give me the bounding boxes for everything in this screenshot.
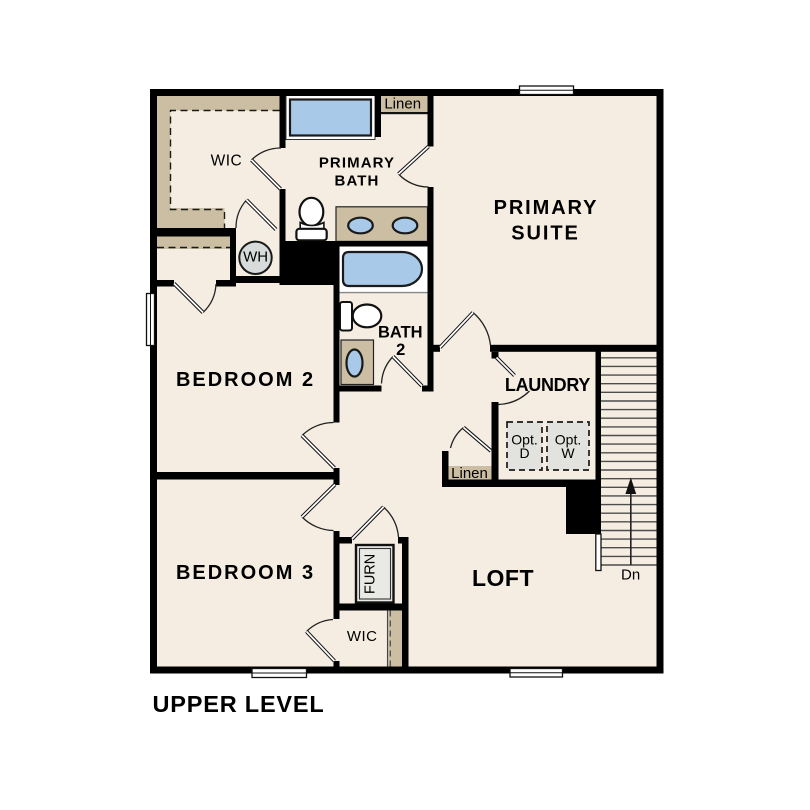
svg-text:W: W	[561, 445, 575, 461]
svg-text:BEDROOM 2: BEDROOM 2	[176, 369, 315, 391]
svg-text:Linen: Linen	[451, 465, 488, 482]
svg-text:PRIMARY: PRIMARY	[494, 197, 599, 219]
svg-text:D: D	[519, 445, 529, 461]
svg-text:BEDROOM 3: BEDROOM 3	[176, 562, 315, 584]
svg-text:WIC: WIC	[211, 152, 243, 169]
svg-text:2: 2	[396, 341, 405, 359]
svg-text:FURN: FURN	[362, 554, 378, 594]
svg-text:LOFT: LOFT	[472, 565, 534, 591]
svg-text:WIC: WIC	[347, 628, 378, 645]
svg-text:LAUNDRY: LAUNDRY	[505, 375, 591, 395]
svg-text:Dn: Dn	[621, 567, 640, 584]
svg-text:UPPER LEVEL: UPPER LEVEL	[153, 691, 325, 717]
svg-text:BATH: BATH	[335, 173, 380, 190]
svg-text:WH: WH	[243, 249, 268, 266]
svg-text:PRIMARY: PRIMARY	[319, 155, 395, 172]
svg-text:SUITE: SUITE	[511, 223, 579, 245]
svg-text:BATH: BATH	[378, 324, 423, 342]
svg-text:Linen: Linen	[384, 96, 421, 113]
